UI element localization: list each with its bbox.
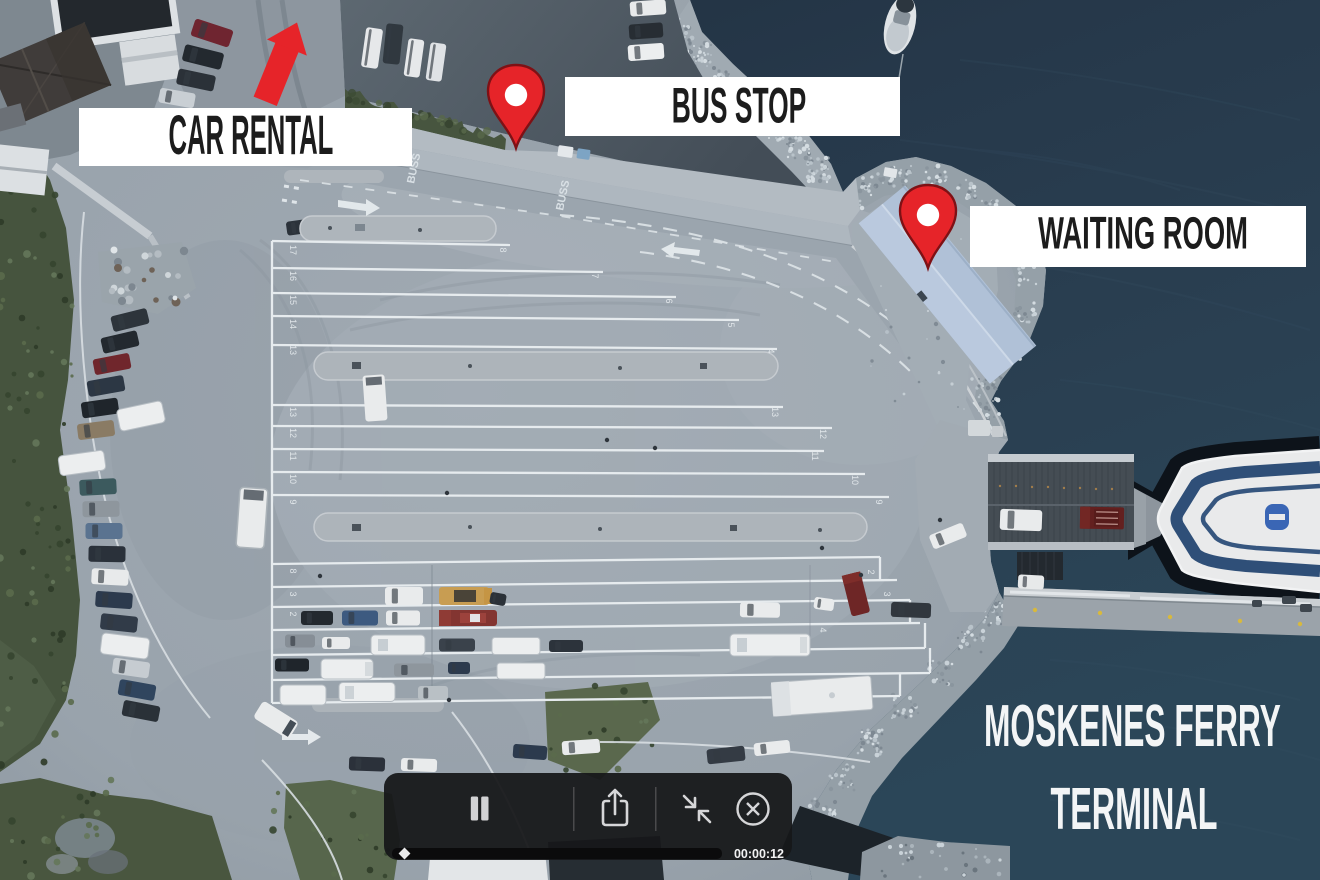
svg-text:WAITING ROOM: WAITING ROOM bbox=[1038, 207, 1248, 258]
svg-text:TERMINAL: TERMINAL bbox=[1050, 777, 1217, 843]
svg-text:BUS STOP: BUS STOP bbox=[672, 79, 806, 134]
svg-text:MOSKENES FERRY: MOSKENES FERRY bbox=[984, 694, 1281, 760]
svg-text:00:00:12: 00:00:12 bbox=[734, 847, 784, 861]
svg-text:CAR RENTAL: CAR RENTAL bbox=[168, 105, 333, 167]
